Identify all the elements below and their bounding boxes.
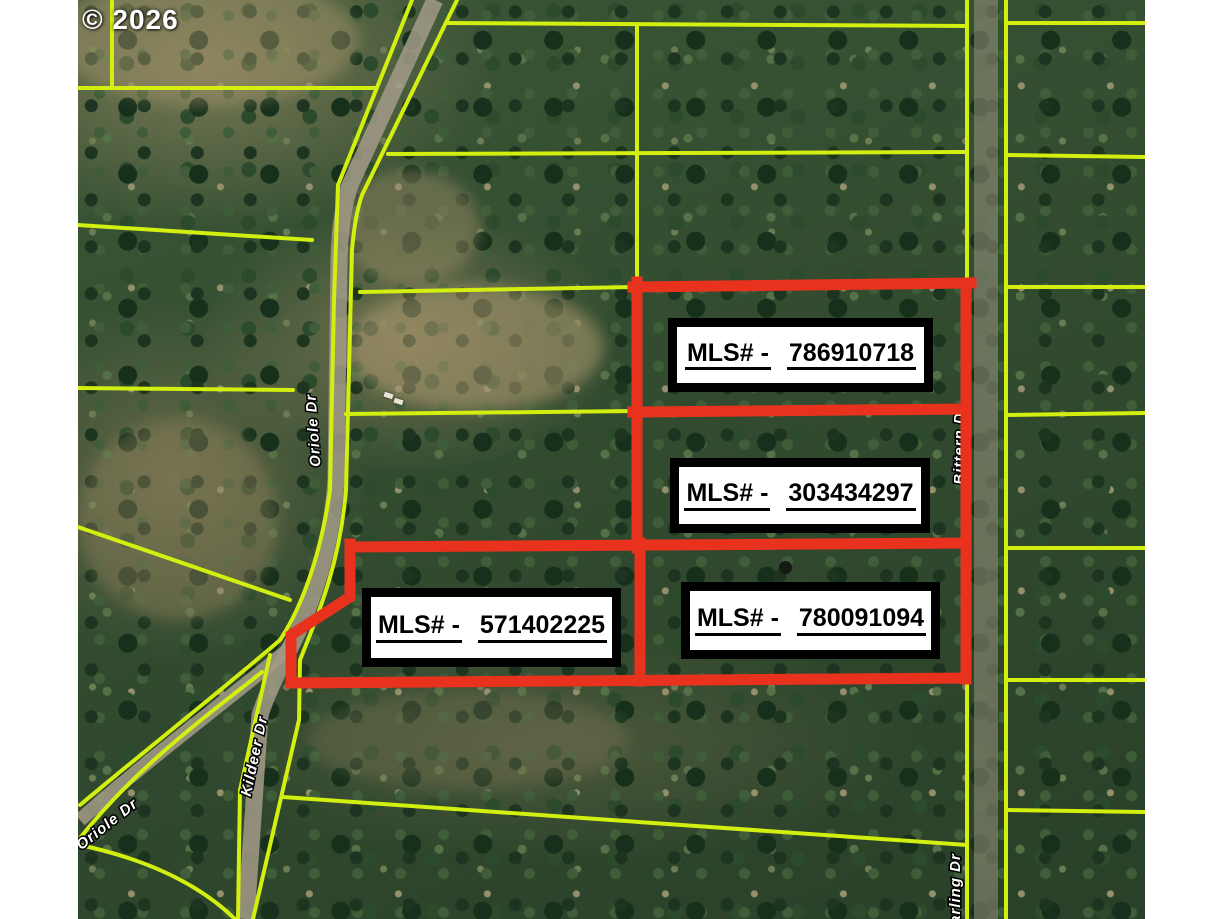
- mls-label-box-4: MLS# -780091094: [681, 582, 940, 659]
- mls-prefix: MLS# -: [376, 612, 462, 642]
- satellite-map[interactable]: Oriole Dr Kildeer Dr Oriole Dr Bittern D…: [78, 0, 1145, 919]
- copyright-watermark: © 2026: [82, 4, 179, 36]
- mls-prefix: MLS# -: [684, 480, 770, 510]
- listing-photo-canvas: Oriole Dr Kildeer Dr Oriole Dr Bittern D…: [0, 0, 1225, 919]
- mls-prefix: MLS# -: [695, 605, 781, 635]
- mls-label-box-3: MLS# -571402225: [362, 588, 621, 667]
- mls-number: 571402225: [478, 612, 607, 642]
- street-label-kildeer-dr: Kildeer Dr: [238, 714, 272, 798]
- mls-number: 786910718: [787, 340, 916, 370]
- mls-prefix: MLS# -: [685, 340, 771, 370]
- mls-label-box-2: MLS# -303434297: [670, 458, 930, 533]
- mls-label-box-1: MLS# -786910718: [668, 318, 933, 392]
- street-label-starling-dr: Starling Dr: [947, 853, 964, 919]
- parcel-overlay: Oriole Dr Kildeer Dr Oriole Dr Bittern D…: [78, 0, 1145, 919]
- mls-number: 303434297: [786, 480, 915, 510]
- street-label-oriole-dr: Oriole Dr: [302, 393, 324, 467]
- mls-number: 780091094: [797, 605, 926, 635]
